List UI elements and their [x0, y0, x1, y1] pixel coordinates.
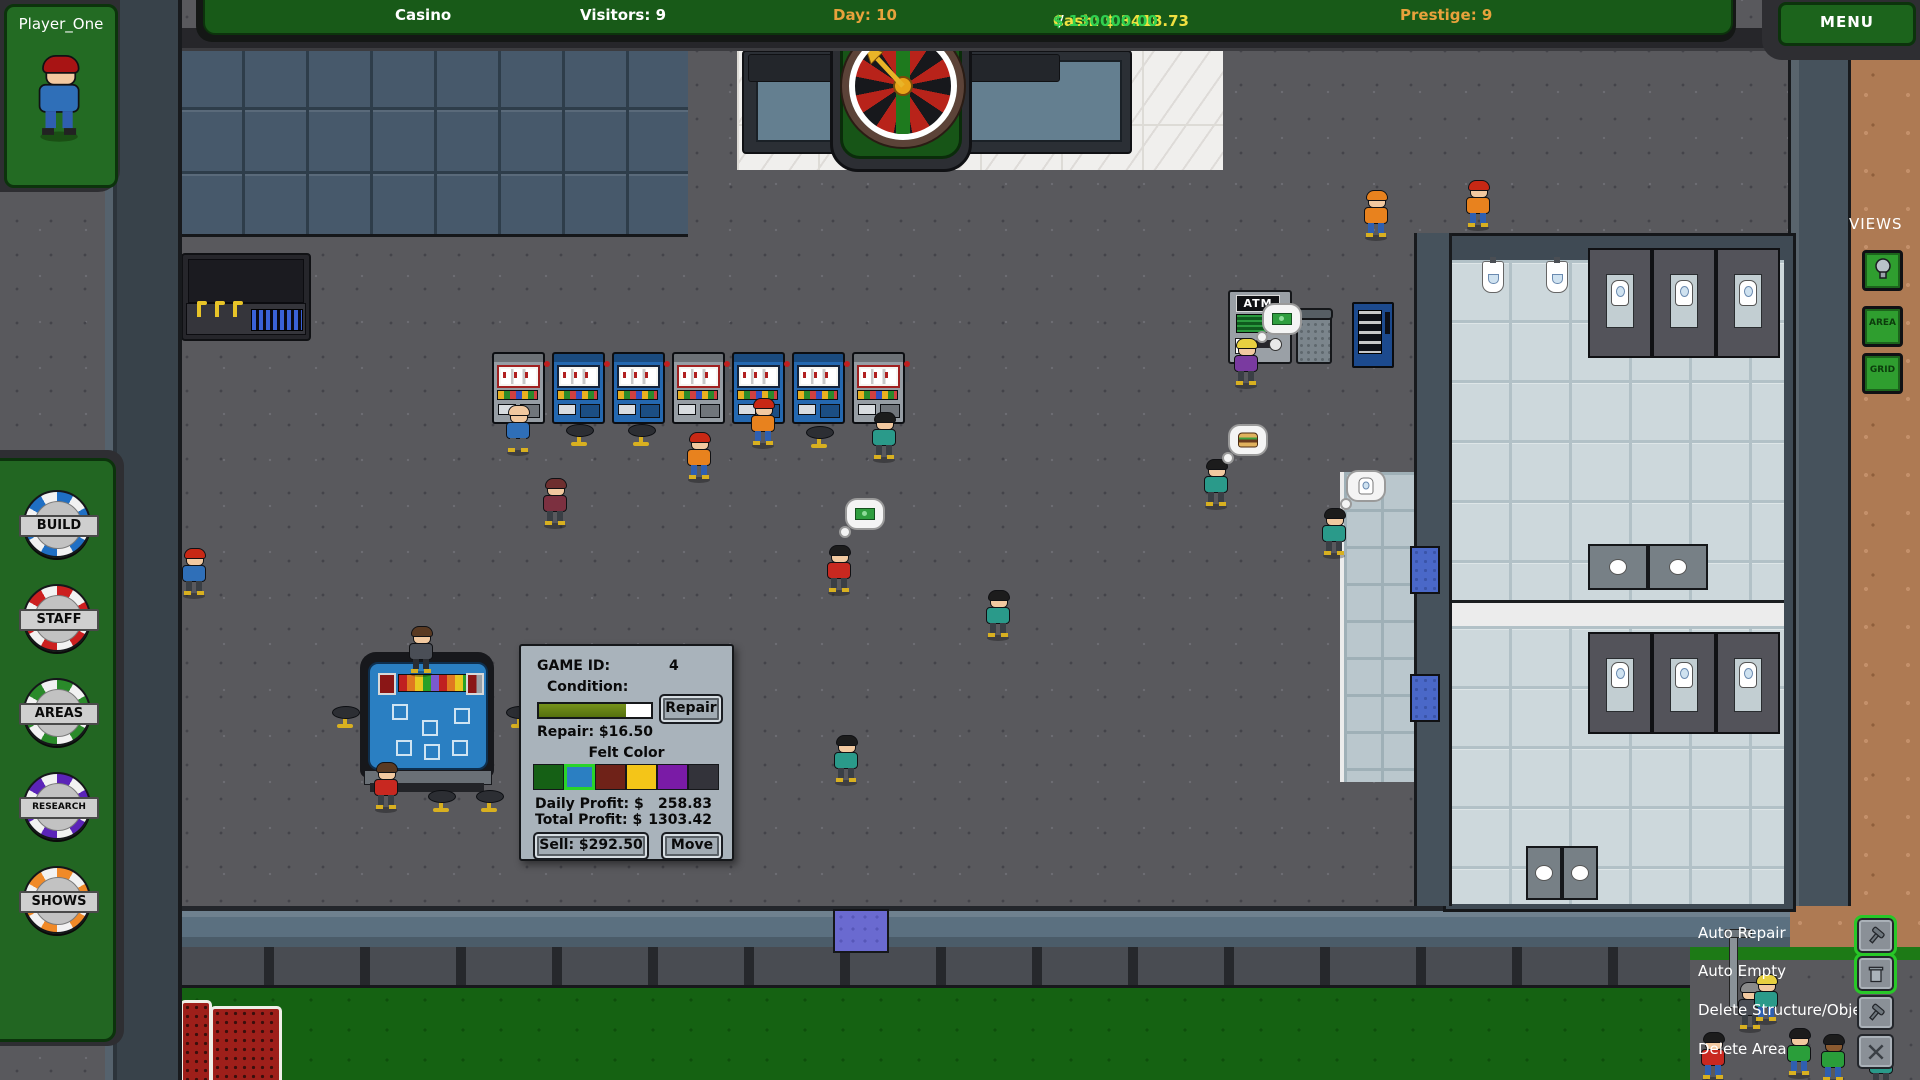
person[interactable] [505, 405, 531, 455]
sidebar-frame: BUILDSTAFFAREASRESEARCHSHOWS [0, 450, 124, 1046]
move-button[interactable]: Move [661, 832, 723, 860]
menu-frame: MENU [1762, 0, 1920, 60]
felt-color-swatch[interactable] [626, 764, 657, 790]
thought-bubble [845, 498, 885, 530]
sidebar-chip-areas[interactable]: AREAS [23, 678, 91, 746]
casino-label: Casino [395, 6, 451, 24]
felt-color-swatches [533, 764, 744, 790]
option-button-x[interactable] [1857, 1034, 1894, 1069]
thought-bubble [1228, 424, 1268, 456]
menu-button[interactable]: MENU [1778, 2, 1916, 46]
game-id-label: GAME ID: [537, 658, 748, 674]
person[interactable] [1465, 180, 1491, 230]
sell-button[interactable]: Sell: $292.50 [533, 832, 649, 860]
person[interactable] [373, 762, 399, 812]
total-profit-label: Total Profit: $ [535, 812, 746, 828]
chip-label: STAFF [19, 609, 99, 631]
person[interactable] [1820, 1034, 1846, 1080]
stool[interactable] [476, 790, 502, 812]
player-avatar [37, 55, 81, 140]
option-label: Auto Repair [1698, 924, 1786, 942]
daily-profit-label: Daily Profit: $ [535, 796, 746, 812]
status-bar-frame: Casino Visitors: 9 Day: 10 Cash: $ 3418.… [196, 0, 1736, 42]
grid-view-label: GRID [1865, 365, 1900, 375]
daily-profit-value: 258.83 [658, 796, 712, 812]
felt-color-swatch[interactable] [564, 764, 595, 790]
thought-bubble [1346, 470, 1386, 502]
player-panel[interactable]: Player_One [4, 4, 118, 188]
felt-color-swatch[interactable] [688, 764, 719, 790]
chip-label: BUILD [19, 515, 99, 537]
chip-label: RESEARCH [19, 797, 99, 819]
slot-machine[interactable] [792, 352, 845, 424]
person[interactable] [1203, 459, 1229, 509]
person[interactable] [833, 735, 859, 785]
repair-cost-label: Repair: $16.50 [537, 724, 748, 740]
status-bar: Casino Visitors: 9 Day: 10 Cash: $ 3418.… [203, 0, 1733, 35]
person[interactable] [1233, 338, 1259, 388]
lightbulb-view-button[interactable] [1862, 250, 1903, 291]
option-label: Delete Area [1698, 1040, 1787, 1058]
person[interactable] [408, 626, 434, 676]
sidebar-chip-build[interactable]: BUILD [23, 490, 91, 558]
person[interactable] [826, 545, 852, 595]
person[interactable] [871, 412, 897, 462]
sidebar-chip-shows[interactable]: SHOWS [23, 866, 91, 934]
stool[interactable] [806, 426, 832, 448]
total-profit-value: 1303.42 [648, 812, 712, 828]
option-button-hammer[interactable] [1857, 995, 1894, 1030]
burger-icon [1238, 433, 1258, 448]
player-name: Player_One [7, 15, 115, 33]
area-view-label: AREA [1865, 318, 1900, 328]
day-label: Day: 10 [833, 6, 897, 24]
felt-color-swatch[interactable] [657, 764, 688, 790]
stool[interactable] [428, 790, 454, 812]
money-icon [1272, 313, 1292, 325]
condition-bar [537, 702, 653, 719]
person[interactable] [1363, 190, 1389, 240]
money-icon [855, 508, 875, 520]
condition-label: Condition: [547, 679, 758, 695]
person[interactable] [1786, 1028, 1812, 1078]
chip-label: AREAS [19, 703, 99, 725]
person[interactable] [985, 590, 1011, 640]
felt-color-swatch[interactable] [595, 764, 626, 790]
option-button-trash[interactable] [1857, 956, 1894, 991]
chip-label: SHOWS [19, 891, 99, 913]
repair-button[interactable]: Repair [659, 694, 723, 724]
slot-machine[interactable] [552, 352, 605, 424]
stool[interactable] [566, 424, 592, 446]
game-info-panel: GAME ID: 4 Condition: Repair Repair: $16… [519, 644, 734, 861]
game-stage: ATM [0, 0, 1920, 1080]
thought-bubble [1262, 303, 1302, 335]
sidebar-chip-research[interactable]: RESEARCH [23, 772, 91, 840]
grid-view-button[interactable]: GRID [1862, 353, 1903, 394]
area-view-button[interactable]: AREA [1862, 306, 1903, 347]
player-frame: Player_One [0, 0, 120, 192]
person[interactable] [1321, 508, 1347, 558]
person[interactable] [181, 548, 207, 598]
person[interactable] [750, 398, 776, 448]
game-id-value: 4 [669, 658, 709, 674]
sidebar: BUILDSTAFFAREASRESEARCHSHOWS [0, 458, 116, 1042]
felt-color-label: Felt Color [521, 745, 732, 761]
stool[interactable] [628, 424, 654, 446]
prestige-label: Prestige: 9 [1400, 6, 1492, 24]
felt-color-swatch[interactable] [533, 764, 564, 790]
person[interactable] [542, 478, 568, 528]
option-label: Auto Empty [1698, 962, 1786, 980]
slot-machine[interactable] [672, 352, 725, 424]
sidebar-chip-staff[interactable]: STAFF [23, 584, 91, 652]
option-label: Delete Structure/Object [1698, 1001, 1876, 1019]
option-button-hammer[interactable] [1857, 918, 1894, 953]
visitors-label: Visitors: 9 [580, 6, 666, 24]
lightbulb-icon [1873, 257, 1893, 281]
views-title: VIEWS [1849, 215, 1919, 233]
stool[interactable] [332, 706, 358, 728]
person[interactable] [686, 432, 712, 482]
toilet-icon [1359, 478, 1374, 495]
slot-machine[interactable] [612, 352, 665, 424]
